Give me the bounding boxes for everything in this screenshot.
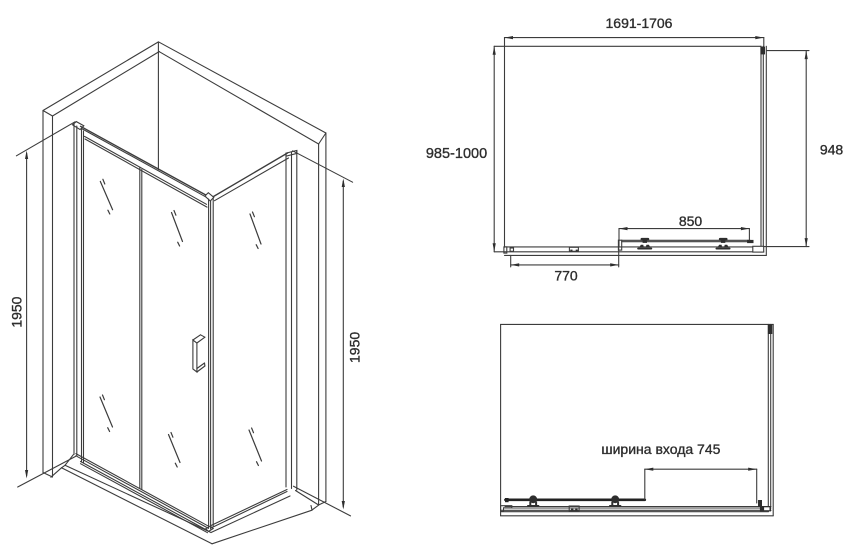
svg-text:850: 850 <box>679 213 703 229</box>
svg-text:1691-1706: 1691-1706 <box>606 15 673 31</box>
svg-text:948: 948 <box>820 141 844 157</box>
svg-text:ширина входа 745: ширина входа 745 <box>601 441 720 457</box>
svg-text:770: 770 <box>554 268 578 284</box>
svg-text:1950: 1950 <box>9 296 25 327</box>
svg-text:1950: 1950 <box>347 332 363 363</box>
svg-text:985-1000: 985-1000 <box>426 146 487 162</box>
